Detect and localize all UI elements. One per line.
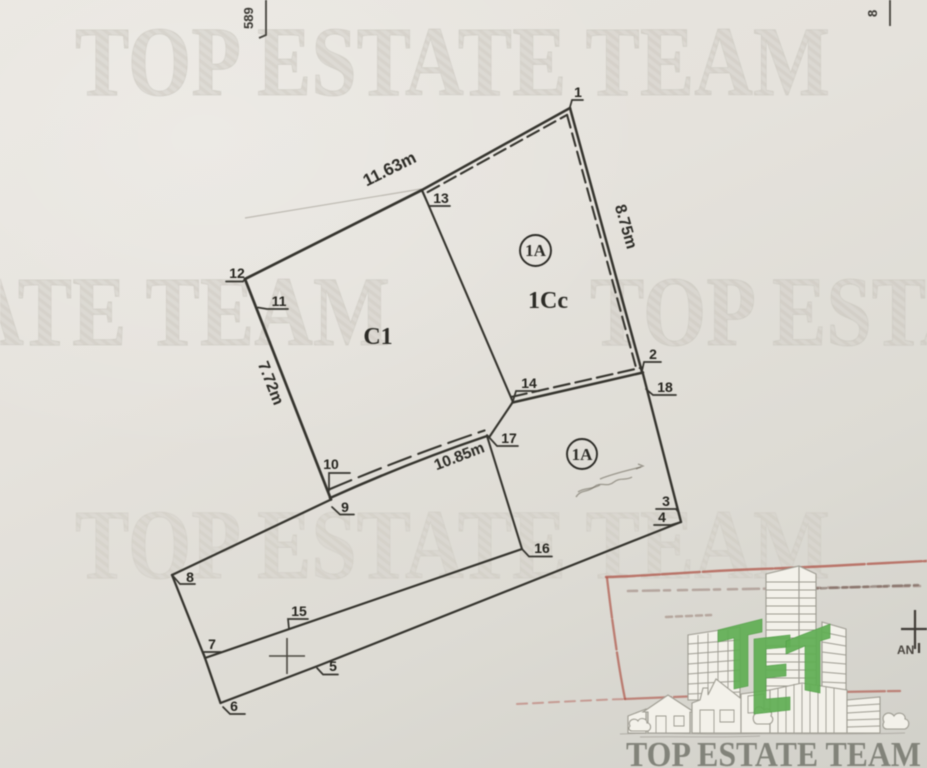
svg-text:12: 12 [229, 265, 245, 281]
svg-text:TOP ESTATE TEAM: TOP ESTATE TEAM [0, 256, 390, 367]
svg-text:5: 5 [329, 658, 337, 674]
svg-text:8: 8 [186, 569, 194, 585]
svg-text:AN: AN [897, 643, 914, 657]
svg-text:4: 4 [658, 509, 666, 525]
svg-text:TOP ESTATE TEAM: TOP ESTATE TEAM [626, 735, 921, 768]
svg-text:1A: 1A [572, 445, 594, 464]
svg-text:10: 10 [323, 456, 339, 472]
svg-text:C1: C1 [363, 324, 392, 350]
svg-text:7: 7 [208, 636, 216, 652]
svg-text:2: 2 [649, 346, 657, 362]
svg-text:TOP ESTATE TEAM: TOP ESTATE TEAM [590, 256, 927, 367]
svg-text:1A: 1A [525, 241, 547, 260]
svg-text:3: 3 [662, 493, 670, 509]
svg-text:1: 1 [574, 84, 582, 100]
svg-text:11.63m: 11.63m [360, 148, 419, 190]
svg-text:18: 18 [657, 379, 673, 395]
svg-text:TOP ESTATE TEAM: TOP ESTATE TEAM [75, 6, 830, 117]
svg-text:1Cc: 1Cc [528, 288, 568, 314]
svg-text:6: 6 [230, 698, 238, 714]
svg-text:14: 14 [521, 375, 537, 391]
svg-text:9: 9 [341, 499, 349, 515]
svg-text:8: 8 [865, 10, 880, 17]
svg-text:11: 11 [272, 293, 287, 309]
svg-text:16: 16 [534, 540, 550, 556]
svg-text:13: 13 [433, 190, 449, 206]
svg-text:8.75m: 8.75m [611, 203, 640, 251]
svg-text:17: 17 [501, 430, 517, 446]
svg-text:15: 15 [291, 603, 307, 619]
svg-text:589: 589 [241, 7, 256, 29]
